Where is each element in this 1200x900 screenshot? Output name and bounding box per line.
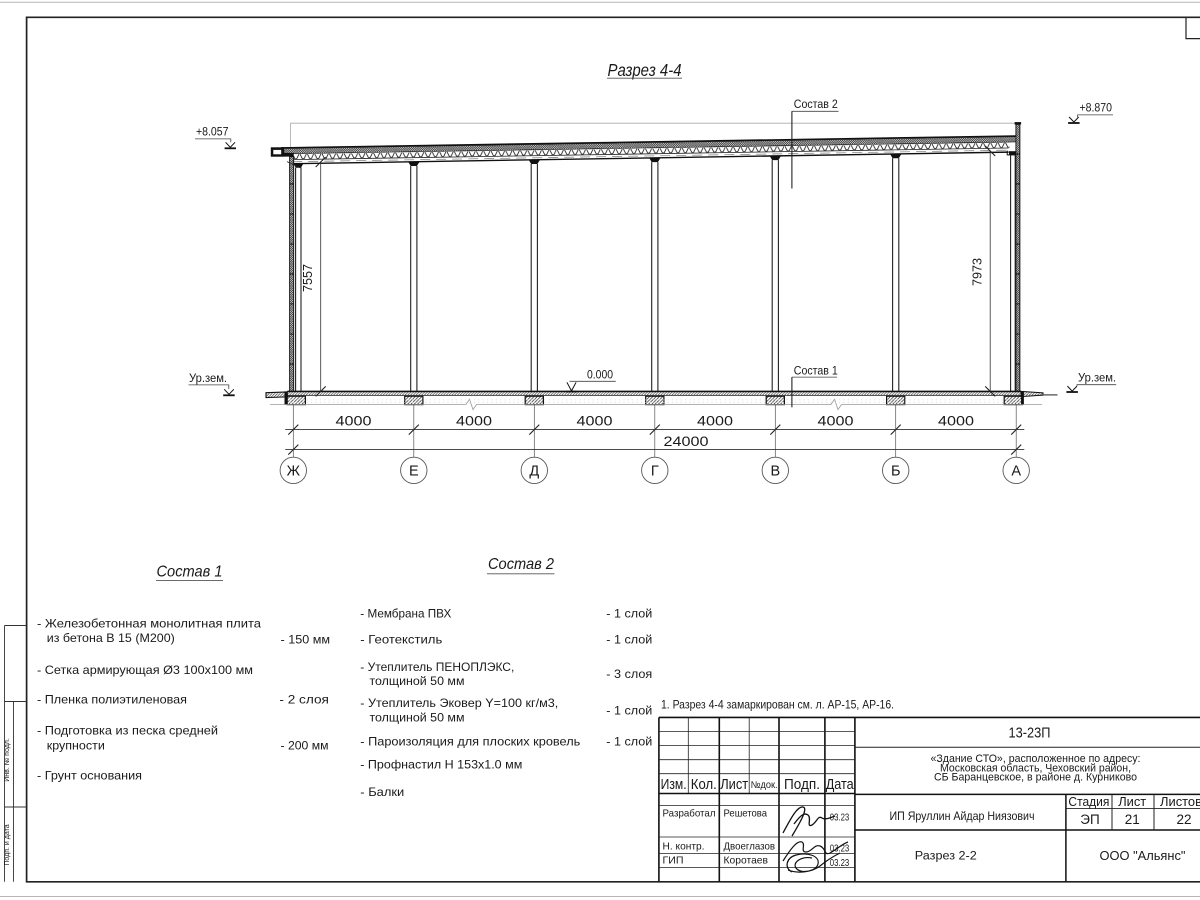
svg-text:- 3 слоя: - 3 слоя (606, 667, 652, 681)
svg-text:толщиной 50 мм: толщиной 50 мм (370, 710, 465, 724)
svg-text:- Железобетонная монолитная п: - Железобетонная монолитная плита (37, 616, 261, 630)
svg-text:ИП Яруллин Айдар Ниязович: ИП Яруллин Айдар Ниязович (890, 809, 1035, 823)
svg-text:03.23: 03.23 (830, 857, 850, 869)
svg-text:Ур.зем.: Ур.зем. (189, 372, 227, 385)
svg-text:Разрез 4-4: Разрез 4-4 (608, 60, 682, 80)
svg-text:Состав 1: Состав 1 (157, 563, 223, 580)
svg-text:Лист: Лист (720, 777, 748, 793)
svg-text:Коротаев: Коротаев (724, 855, 769, 867)
svg-text:ООО "Альянс": ООО "Альянс" (1100, 849, 1186, 863)
svg-text:толщиной 50 мм: толщиной 50 мм (370, 674, 465, 688)
svg-text:из бетона В 15 (М200): из бетона В 15 (М200) (47, 631, 175, 645)
svg-text:7973: 7973 (971, 258, 985, 286)
svg-text:Подп.: Подп. (784, 777, 820, 793)
svg-text:- 1 слой: - 1 слой (606, 735, 652, 749)
svg-text:- 1 слой: - 1 слой (606, 632, 652, 646)
svg-text:Двоеглазов: Двоеглазов (724, 840, 776, 852)
svg-text:- Геотекстиль: - Геотекстиль (360, 632, 442, 646)
svg-text:Подп. и дата: Подп. и дата (4, 824, 11, 865)
svg-text:4000: 4000 (456, 413, 492, 428)
svg-text:4000: 4000 (818, 413, 854, 428)
svg-text:Е: Е (409, 464, 419, 480)
svg-text:Листов: Листов (1160, 794, 1200, 809)
svg-text:- 200 мм: - 200 мм (281, 738, 329, 752)
svg-text:Дата: Дата (826, 777, 855, 793)
svg-text:24000: 24000 (664, 434, 709, 449)
svg-text:Изм.: Изм. (661, 777, 687, 793)
svg-text:ГИП: ГИП (663, 855, 684, 867)
svg-text:4000: 4000 (938, 413, 974, 428)
svg-text:- Сетка армирующая Ø3 100х100: - Сетка армирующая Ø3 100х100 мм (37, 663, 253, 677)
svg-text:Разрез 2-2: Разрез 2-2 (915, 851, 977, 863)
svg-text:Состав 2: Состав 2 (488, 556, 554, 573)
svg-text:0.000: 0.000 (587, 367, 613, 381)
svg-text:Ур.зем.: Ур.зем. (1078, 372, 1116, 385)
svg-text:- Утеплитель ПЕНОПЛЭКС,: - Утеплитель ПЕНОПЛЭКС, (360, 660, 514, 674)
svg-text:21: 21 (1125, 812, 1140, 827)
svg-text:- 1 слой: - 1 слой (606, 606, 652, 620)
svg-text:Состав 2: Состав 2 (794, 97, 838, 111)
svg-text:- Утеплитель Эковер Y=100 кг/м: - Утеплитель Эковер Y=100 кг/м3, (360, 696, 558, 710)
svg-text:Кол.: Кол. (691, 777, 717, 793)
svg-text:СБ Баранцевское, в районе д. К: СБ Баранцевское, в районе д. Курниково (934, 772, 1137, 784)
svg-text:- 1 слой: - 1 слой (606, 703, 652, 717)
svg-text:Лист: Лист (1118, 794, 1146, 809)
svg-text:- Грунт основания: - Грунт основания (37, 769, 142, 783)
svg-text:Г: Г (651, 464, 659, 480)
svg-text:- Пароизоляция для плоских кро: - Пароизоляция для плоских кровель (360, 735, 580, 749)
svg-text:- Мембрана ПВХ: - Мембрана ПВХ (360, 606, 451, 620)
svg-text:13-23П: 13-23П (1009, 726, 1051, 742)
svg-text:- 150 мм: - 150 мм (281, 632, 331, 646)
svg-text:Ж: Ж (287, 464, 301, 480)
svg-text:крупности: крупности (47, 738, 105, 752)
svg-text:Стадия: Стадия (1068, 794, 1109, 809)
svg-text:1. Разрез 4-4 замаркирован см.: 1. Разрез 4-4 замаркирован см. л. АР-15,… (661, 698, 894, 711)
svg-text:4000: 4000 (336, 413, 372, 428)
svg-text:ЭП: ЭП (1080, 812, 1099, 827)
svg-text:Решетова: Решетова (724, 808, 768, 820)
svg-text:№док.: №док. (751, 780, 778, 791)
svg-text:+8.870: +8.870 (1080, 101, 1113, 115)
svg-text:Инв. № подл.: Инв. № подл. (4, 738, 11, 782)
svg-text:7557: 7557 (301, 264, 315, 292)
svg-text:Д: Д (529, 464, 539, 480)
svg-text:4000: 4000 (577, 413, 613, 428)
svg-text:+8.057: +8.057 (196, 125, 229, 139)
svg-text:- Балки: - Балки (360, 785, 404, 799)
svg-text:Б: Б (891, 464, 901, 480)
svg-text:22: 22 (1176, 812, 1191, 827)
svg-text:4000: 4000 (697, 413, 733, 428)
svg-text:Разработал: Разработал (663, 808, 716, 820)
svg-text:Состав 1: Состав 1 (794, 364, 838, 378)
svg-text:- Подготовка из песка средней: - Подготовка из песка средней (37, 724, 218, 738)
svg-text:Н. контр.: Н. контр. (663, 840, 705, 852)
svg-text:В: В (770, 464, 780, 480)
svg-text:- Пленка полиэтиленовая: - Пленка полиэтиленовая (37, 693, 187, 707)
svg-text:А: А (1011, 464, 1021, 480)
svg-text:- 2 слоя: - 2 слоя (279, 693, 329, 707)
svg-text:- Профнастил Н 153х1.0 мм: - Профнастил Н 153х1.0 мм (360, 758, 522, 772)
